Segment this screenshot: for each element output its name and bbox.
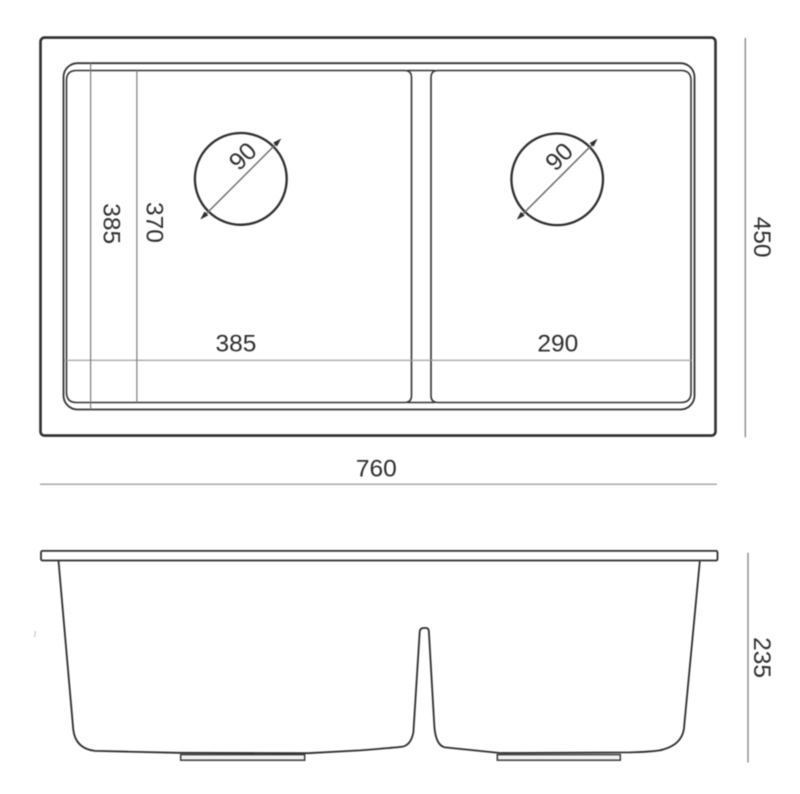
svg-text:760: 760: [356, 456, 397, 483]
svg-text:385: 385: [97, 203, 124, 244]
svg-text:450: 450: [748, 217, 775, 258]
svg-text:235: 235: [748, 637, 775, 678]
svg-text:385: 385: [216, 331, 257, 358]
svg-text:370: 370: [141, 202, 168, 243]
svg-text:290: 290: [537, 331, 578, 358]
